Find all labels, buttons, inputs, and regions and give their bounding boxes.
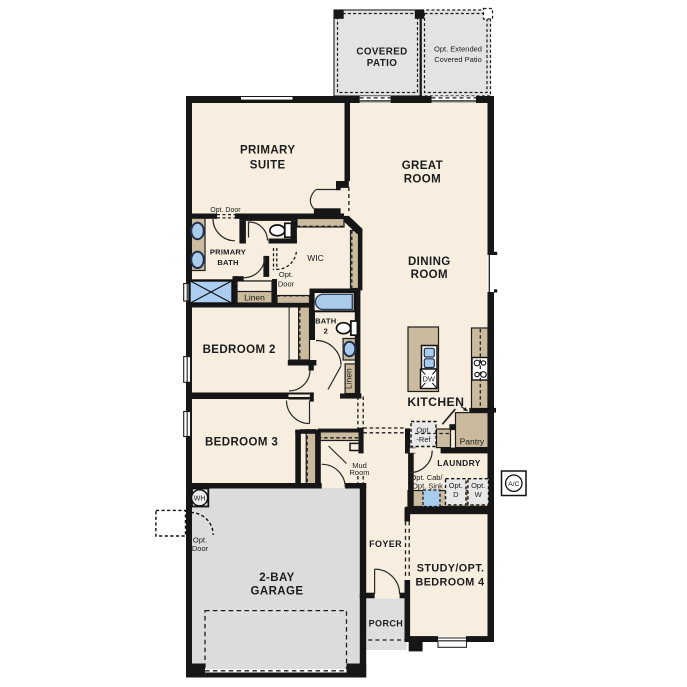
svg-text:Opt. Extended: Opt. Extended xyxy=(434,45,482,54)
svg-text:-Ref: -Ref xyxy=(416,435,431,444)
svg-text:Opt.: Opt. xyxy=(416,426,430,435)
svg-text:Linen: Linen xyxy=(244,293,265,303)
svg-text:ROOM: ROOM xyxy=(411,269,448,281)
svg-text:Opt. Sink: Opt. Sink xyxy=(412,482,443,491)
svg-text:Opt.: Opt. xyxy=(449,481,463,490)
svg-text:BATH: BATH xyxy=(217,258,238,267)
svg-text:Linen: Linen xyxy=(343,368,353,389)
svg-text:2: 2 xyxy=(324,327,328,336)
svg-text:KITCHEN: KITCHEN xyxy=(407,395,464,409)
svg-text:Door: Door xyxy=(192,544,209,553)
svg-text:A/C: A/C xyxy=(508,481,519,488)
svg-text:BATH: BATH xyxy=(315,316,336,325)
svg-text:Opt.: Opt. xyxy=(471,481,485,490)
svg-text:LAUNDRY: LAUNDRY xyxy=(437,458,480,468)
svg-text:PATIO: PATIO xyxy=(367,58,397,69)
svg-text:2-BAY: 2-BAY xyxy=(259,572,294,584)
svg-text:GARAGE: GARAGE xyxy=(251,586,304,598)
svg-text:GREAT: GREAT xyxy=(402,160,443,172)
svg-text:WH: WH xyxy=(194,495,206,502)
svg-text:COVERED: COVERED xyxy=(356,47,407,58)
svg-text:FOYER: FOYER xyxy=(369,539,402,549)
svg-text:WIC: WIC xyxy=(307,253,324,263)
svg-text:PRIMARY: PRIMARY xyxy=(240,145,295,157)
svg-text:STUDY/OPT.: STUDY/OPT. xyxy=(417,562,485,574)
svg-text:BEDROOM 4: BEDROOM 4 xyxy=(416,576,485,588)
svg-text:Door: Door xyxy=(278,280,295,289)
svg-text:SUITE: SUITE xyxy=(250,159,286,171)
svg-text:Pantry: Pantry xyxy=(460,437,485,447)
svg-text:Opt. Cab/: Opt. Cab/ xyxy=(410,473,443,482)
svg-text:Opt.: Opt. xyxy=(279,270,293,279)
svg-text:ROOM: ROOM xyxy=(404,173,441,185)
svg-text:D: D xyxy=(453,490,459,499)
svg-text:W: W xyxy=(475,490,483,499)
svg-text:DW: DW xyxy=(422,375,435,384)
svg-text:BEDROOM 3: BEDROOM 3 xyxy=(205,437,278,449)
svg-text:Covered Patio: Covered Patio xyxy=(434,55,482,64)
svg-text:BEDROOM 2: BEDROOM 2 xyxy=(203,344,276,356)
svg-text:Room: Room xyxy=(349,468,369,477)
svg-text:DINING: DINING xyxy=(408,256,451,268)
svg-text:PORCH: PORCH xyxy=(369,618,404,628)
svg-text:PRIMARY: PRIMARY xyxy=(210,247,246,256)
svg-text:Opt. Door: Opt. Door xyxy=(210,207,241,214)
